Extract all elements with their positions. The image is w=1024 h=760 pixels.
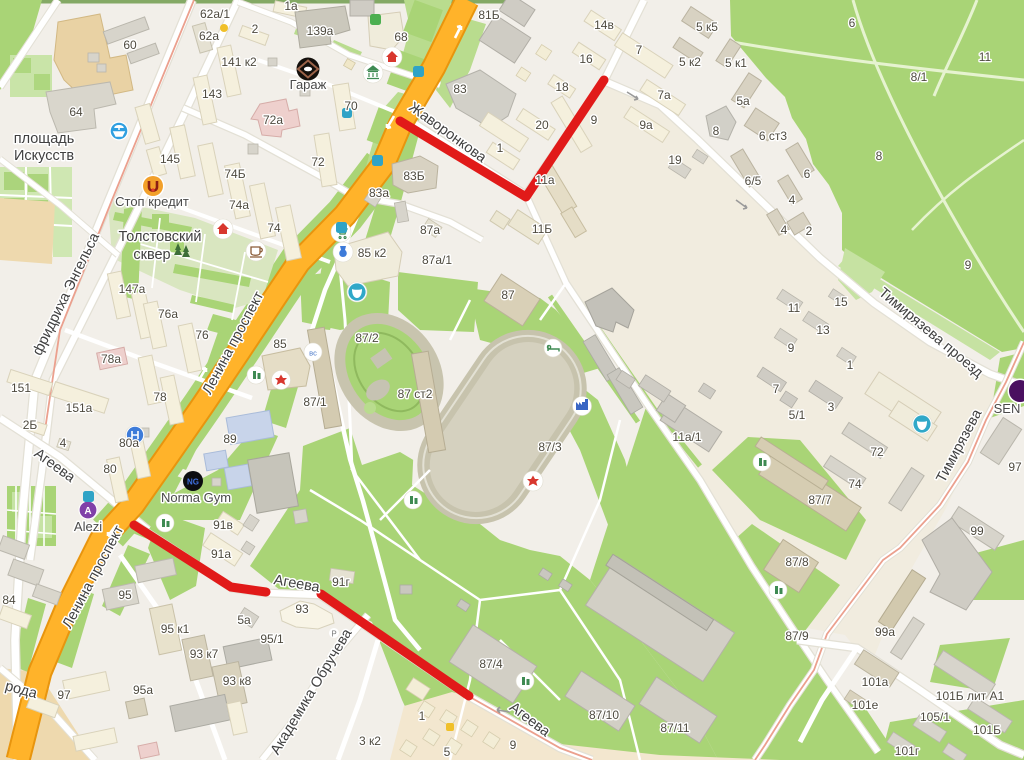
svg-text:11: 11: [979, 50, 992, 64]
svg-text:3 к2: 3 к2: [359, 734, 381, 748]
svg-text:85 к2: 85 к2: [358, 246, 387, 260]
svg-text:89: 89: [223, 432, 237, 446]
svg-text:11Б: 11Б: [532, 222, 552, 236]
svg-text:87/8: 87/8: [785, 555, 809, 569]
svg-text:74: 74: [267, 221, 281, 235]
svg-text:101а: 101а: [862, 675, 889, 689]
svg-text:74а: 74а: [229, 198, 249, 212]
svg-text:3: 3: [828, 400, 835, 414]
svg-text:87/3: 87/3: [538, 440, 562, 454]
svg-text:64: 64: [69, 105, 83, 119]
svg-text:NG: NG: [187, 478, 199, 487]
svg-text:9: 9: [510, 738, 517, 752]
svg-text:87: 87: [501, 288, 515, 302]
svg-text:76: 76: [195, 328, 209, 342]
svg-text:14в: 14в: [594, 18, 614, 32]
svg-text:1: 1: [419, 709, 426, 723]
svg-text:87/1: 87/1: [303, 395, 327, 409]
svg-text:1: 1: [847, 358, 854, 372]
svg-text:4: 4: [781, 223, 788, 237]
svg-text:147а: 147а: [119, 282, 146, 296]
svg-text:2: 2: [806, 224, 813, 238]
svg-text:87а: 87а: [420, 223, 440, 237]
svg-text:18: 18: [555, 80, 569, 94]
svg-text:84: 84: [2, 593, 16, 607]
svg-text:101Б лит А1: 101Б лит А1: [936, 689, 1005, 703]
svg-text:72: 72: [311, 155, 325, 169]
svg-text:99а: 99а: [875, 625, 895, 639]
svg-text:101Б: 101Б: [973, 723, 1001, 737]
svg-text:83а: 83а: [369, 186, 389, 200]
svg-text:74Б: 74Б: [224, 167, 245, 181]
svg-text:8/1: 8/1: [911, 70, 928, 84]
svg-text:Толстовский: Толстовский: [118, 229, 201, 245]
svg-text:5 к5: 5 к5: [696, 20, 718, 34]
svg-text:7а: 7а: [657, 88, 671, 102]
svg-text:101е: 101е: [852, 698, 879, 712]
svg-text:9: 9: [788, 341, 795, 355]
svg-text:139а: 139а: [307, 24, 334, 38]
svg-text:9: 9: [591, 113, 598, 127]
svg-text:87/4: 87/4: [479, 657, 503, 671]
svg-text:93 к8: 93 к8: [223, 674, 252, 688]
svg-text:9: 9: [965, 258, 972, 272]
svg-text:11а: 11а: [535, 173, 554, 187]
svg-text:87а/1: 87а/1: [422, 253, 452, 267]
svg-text:151а: 151а: [66, 401, 93, 415]
svg-text:15: 15: [834, 295, 848, 309]
svg-text:5а: 5а: [237, 613, 251, 627]
svg-text:A: A: [84, 506, 91, 517]
svg-text:11: 11: [788, 301, 801, 315]
svg-text:97: 97: [1008, 460, 1022, 474]
svg-text:4: 4: [60, 436, 67, 450]
svg-text:101г: 101г: [895, 744, 920, 758]
svg-text:9а: 9а: [639, 118, 653, 132]
svg-text:91г: 91г: [332, 575, 350, 589]
svg-text:91а: 91а: [211, 547, 231, 561]
svg-text:60: 60: [123, 38, 137, 52]
svg-text:Стоп кредит: Стоп кредит: [115, 194, 189, 209]
svg-text:143: 143: [202, 87, 222, 101]
svg-text:95: 95: [118, 588, 132, 602]
svg-text:Norma Gym: Norma Gym: [161, 490, 231, 505]
svg-text:87/10: 87/10: [589, 708, 619, 722]
svg-text:Искусств: Искусств: [14, 148, 74, 164]
svg-text:72а: 72а: [263, 113, 283, 127]
svg-text:87/11: 87/11: [660, 721, 689, 735]
svg-text:97: 97: [57, 688, 71, 702]
svg-text:105/1: 105/1: [920, 710, 950, 724]
svg-text:вс: вс: [309, 349, 317, 358]
svg-text:93 к7: 93 к7: [190, 647, 219, 661]
svg-text:площадь: площадь: [14, 131, 75, 147]
svg-text:87/7: 87/7: [808, 493, 832, 507]
svg-text:6 ст3: 6 ст3: [759, 129, 788, 143]
svg-text:8: 8: [876, 149, 883, 163]
svg-text:95/1: 95/1: [260, 632, 284, 646]
svg-text:151: 151: [11, 381, 31, 395]
svg-text:4: 4: [789, 193, 796, 207]
svg-text:145: 145: [160, 152, 180, 166]
svg-text:85: 85: [273, 337, 287, 351]
svg-text:5а: 5а: [736, 94, 750, 108]
svg-text:87/2: 87/2: [355, 331, 379, 345]
svg-text:Гараж: Гараж: [290, 77, 327, 92]
svg-text:93: 93: [295, 602, 309, 616]
svg-text:16: 16: [579, 52, 593, 66]
svg-text:95а: 95а: [133, 683, 153, 697]
svg-text:5 к1: 5 к1: [725, 56, 747, 70]
svg-text:19: 19: [668, 153, 682, 167]
svg-text:74: 74: [848, 477, 862, 491]
svg-text:62а/1: 62а/1: [200, 7, 230, 21]
svg-text:сквер: сквер: [133, 247, 170, 263]
svg-text:5 к2: 5 к2: [679, 55, 701, 69]
svg-text:76а: 76а: [158, 307, 178, 321]
svg-text:5: 5: [444, 745, 451, 759]
svg-text:78а: 78а: [101, 352, 121, 366]
svg-text:11а/1: 11а/1: [672, 430, 701, 444]
svg-text:70: 70: [344, 99, 358, 113]
svg-text:Alezi: Alezi: [74, 519, 102, 534]
svg-text:20: 20: [535, 118, 549, 132]
svg-text:95 к1: 95 к1: [161, 622, 190, 636]
svg-text:6/5: 6/5: [745, 174, 762, 188]
svg-text:99: 99: [970, 524, 984, 538]
svg-text:8: 8: [713, 124, 720, 138]
svg-text:6: 6: [804, 167, 811, 181]
svg-text:83Б: 83Б: [403, 169, 424, 183]
svg-text:78: 78: [153, 390, 167, 404]
svg-text:68: 68: [394, 30, 408, 44]
svg-text:2: 2: [252, 22, 259, 36]
svg-text:87/9: 87/9: [785, 629, 809, 643]
svg-text:81Б: 81Б: [478, 8, 499, 22]
svg-text:80: 80: [103, 462, 117, 476]
svg-text:1а: 1а: [284, 0, 298, 13]
svg-text:7: 7: [773, 382, 780, 396]
svg-text:7: 7: [636, 43, 643, 57]
svg-text:1: 1: [497, 141, 504, 155]
svg-text:6: 6: [849, 16, 856, 30]
svg-text:83: 83: [453, 82, 467, 96]
svg-text:2Б: 2Б: [23, 418, 38, 432]
svg-text:141 к2: 141 к2: [221, 55, 257, 69]
svg-text:91в: 91в: [213, 518, 233, 532]
svg-text:87 ст2: 87 ст2: [398, 387, 433, 401]
svg-text:13: 13: [816, 323, 830, 337]
svg-text:5/1: 5/1: [789, 408, 806, 422]
svg-text:62а: 62а: [199, 29, 219, 43]
svg-text:72: 72: [870, 445, 884, 459]
svg-text:80а: 80а: [119, 436, 139, 450]
svg-text:SEN: SEN: [994, 401, 1021, 416]
